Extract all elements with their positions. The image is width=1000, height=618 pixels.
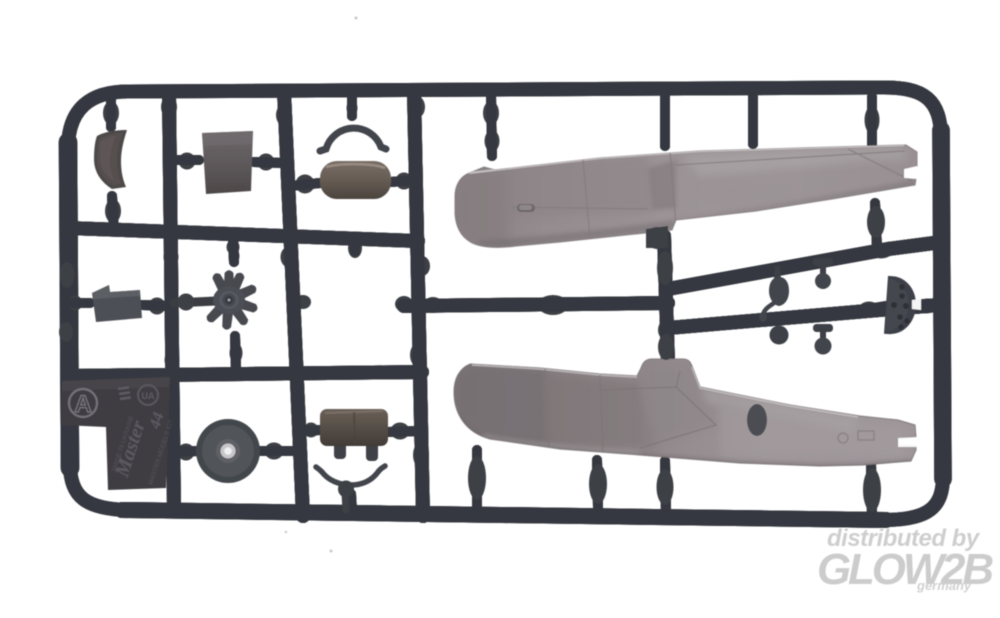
svg-text:germany: germany: [916, 578, 972, 593]
svg-text:A: A: [74, 391, 91, 418]
svg-text:UA: UA: [142, 391, 155, 401]
